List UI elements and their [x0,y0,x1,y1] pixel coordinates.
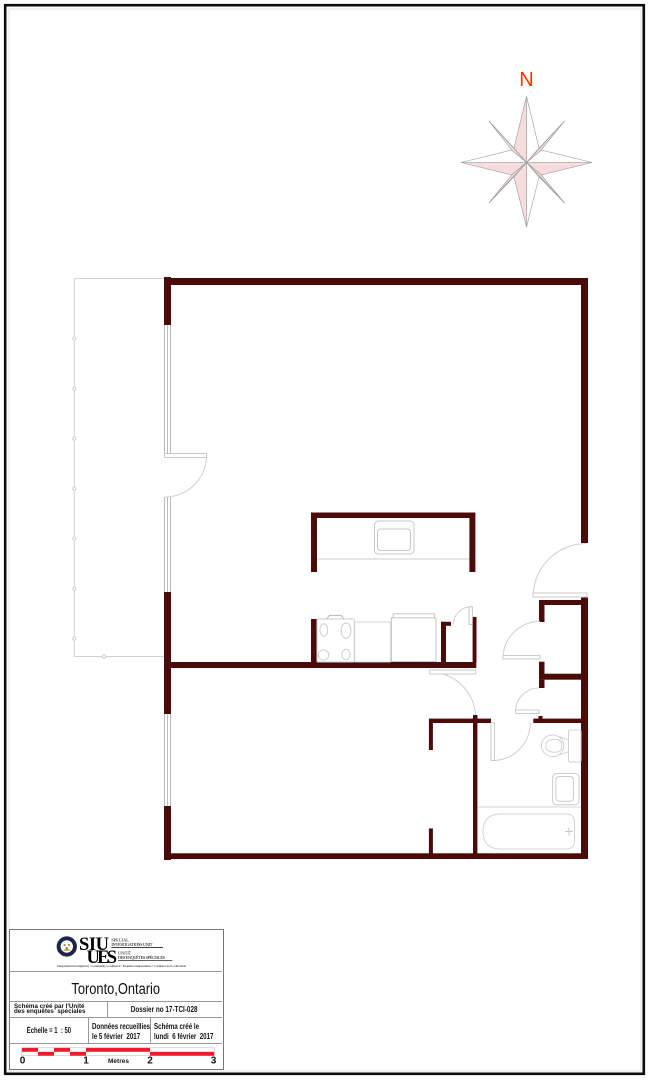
svg-text:Mètres: Mètres [108,1058,129,1065]
svg-text:DES ENQUÊTES SPÉCIALES: DES ENQUÊTES SPÉCIALES [118,955,166,960]
svg-text:1: 1 [83,1056,89,1067]
svg-text:2: 2 [147,1056,153,1067]
svg-text:0: 0 [20,1056,26,1067]
svg-text:Independent Investigations • C: Independent Investigations • Community C… [57,964,187,968]
svg-text:N: N [519,69,533,91]
svg-text:INVESTIGATIONS UNIT: INVESTIGATIONS UNIT [111,942,152,947]
svg-text:3: 3 [211,1056,217,1067]
